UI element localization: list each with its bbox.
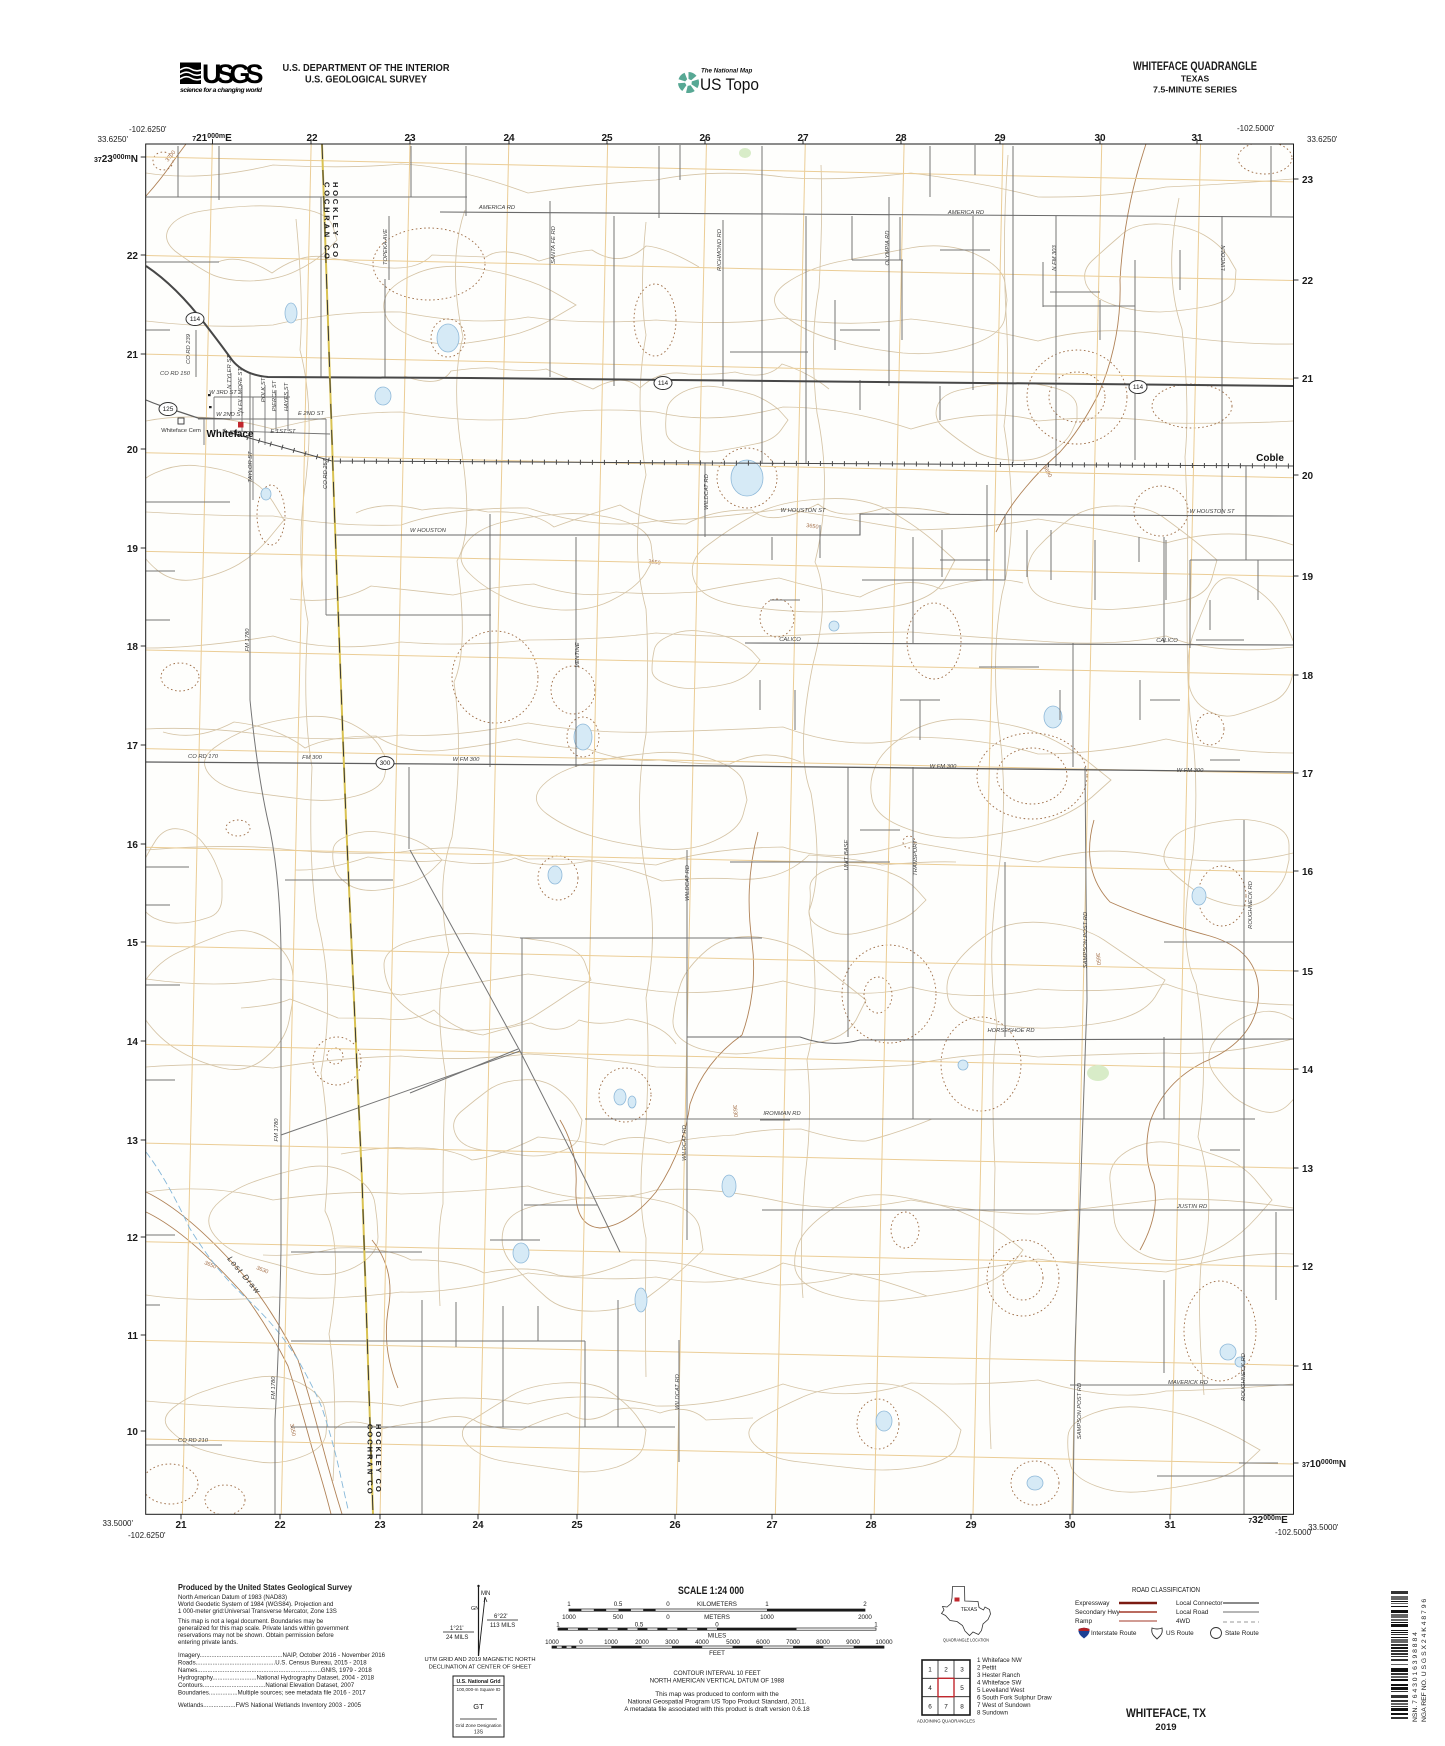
svg-text:U.S. National Grid: U.S. National Grid: [456, 1679, 500, 1685]
svg-text:13S: 13S: [474, 1730, 484, 1736]
svg-text:8000: 8000: [816, 1639, 830, 1646]
svg-text:19: 19: [127, 544, 139, 555]
svg-text:CO RD 170: CO RD 170: [188, 754, 219, 760]
svg-text:19: 19: [1302, 572, 1314, 583]
svg-text:WHITEFACE, TX: WHITEFACE, TX: [1126, 1706, 1206, 1720]
svg-text:4 Whiteface SW: 4 Whiteface SW: [977, 1680, 1022, 1687]
svg-text:13: 13: [127, 1136, 139, 1147]
svg-text:E 1ST ST: E 1ST ST: [270, 429, 296, 435]
svg-text:113 MILS: 113 MILS: [490, 1623, 515, 1629]
svg-text:TEXAS: TEXAS: [1181, 74, 1210, 84]
svg-text:2: 2: [944, 1667, 948, 1674]
svg-text:21: 21: [175, 1520, 187, 1531]
svg-text:Imagery.......................: Imagery.................................…: [178, 1652, 386, 1659]
svg-text:WILDCAT RD: WILDCAT RD: [685, 865, 691, 901]
svg-text:Interstate Route: Interstate Route: [1091, 1630, 1137, 1637]
svg-text:20: 20: [1302, 471, 1314, 482]
svg-text:Expressway: Expressway: [1075, 1600, 1110, 1607]
svg-text:0: 0: [666, 1601, 670, 1608]
svg-text:WILDCAT RD: WILDCAT RD: [704, 474, 710, 510]
svg-text:6 South Fork Sulphur Draw: 6 South Fork Sulphur Draw: [977, 1695, 1052, 1702]
svg-text:25: 25: [601, 133, 613, 144]
svg-text:ADJOINING QUADRANGLES: ADJOINING QUADRANGLES: [917, 1719, 975, 1725]
svg-text:7000: 7000: [786, 1639, 800, 1646]
svg-text:CO RD 239: CO RD 239: [186, 333, 192, 364]
svg-text:SAMPSON POST RD: SAMPSON POST RD: [1077, 1383, 1083, 1439]
svg-text:VENTINE: VENTINE: [575, 642, 581, 667]
svg-text:14: 14: [1302, 1065, 1314, 1076]
svg-text:Local Road: Local Road: [1176, 1609, 1209, 1616]
svg-text:W FM 300: W FM 300: [1177, 768, 1205, 774]
svg-text:METERS: METERS: [704, 1614, 730, 1621]
svg-text:NSN. 7 6 4 3 0 1 6 3 9 8 8 8: NSN. 7 6 4 3 0 1 6 3 9 8 8 8 4: [1412, 1632, 1419, 1722]
svg-text:12: 12: [127, 1233, 139, 1244]
svg-text:science for a changing world: science for a changing world: [180, 87, 263, 94]
svg-text:W 3RD ST: W 3RD ST: [209, 390, 237, 396]
svg-text:JUSTIN RD: JUSTIN RD: [1176, 1204, 1207, 1210]
svg-text:2000: 2000: [858, 1614, 872, 1621]
svg-text:US Route: US Route: [1166, 1630, 1194, 1637]
svg-text:TRANSPORT: TRANSPORT: [913, 840, 919, 876]
svg-text:-102.6250': -102.6250': [128, 1531, 166, 1540]
svg-text:5: 5: [960, 1685, 964, 1692]
svg-text:2: 2: [863, 1601, 867, 1608]
svg-text:27: 27: [766, 1520, 778, 1531]
svg-text:Coble: Coble: [1256, 453, 1284, 464]
svg-text:500: 500: [613, 1614, 624, 1621]
svg-text:22: 22: [306, 133, 318, 144]
svg-text:Hydrography...................: Hydrography..........................Nat…: [178, 1675, 375, 1682]
svg-text:CALICO: CALICO: [1156, 638, 1178, 644]
svg-text:State Route: State Route: [1225, 1630, 1259, 1637]
svg-text:KILOMETERS: KILOMETERS: [697, 1601, 737, 1608]
svg-text:Whiteface: Whiteface: [207, 428, 254, 440]
svg-text:Secondary Hwy: Secondary Hwy: [1075, 1609, 1121, 1616]
svg-text:12: 12: [1302, 1262, 1314, 1273]
svg-text:6000: 6000: [756, 1639, 770, 1646]
svg-text:31: 31: [1191, 133, 1203, 144]
svg-text:National Geospatial Program US: National Geospatial Program US Topo Prod…: [628, 1699, 807, 1706]
svg-text:DECLINATION AT CENTER OF SHEET: DECLINATION AT CENTER OF SHEET: [429, 1665, 532, 1671]
svg-text:SAMPSON POST RD: SAMPSON POST RD: [1083, 912, 1089, 968]
svg-text:NGA REF NO. U S G S X 2 4 K: NGA REF NO. U S G S X 2 4 K 4 8 7 9 6: [1421, 1599, 1428, 1722]
svg-text:U.S. DEPARTMENT OF THE INTERIO: U.S. DEPARTMENT OF THE INTERIOR: [283, 63, 451, 74]
svg-text:CO RD 150: CO RD 150: [160, 371, 191, 377]
svg-text:GN: GN: [471, 1606, 479, 1612]
svg-text:entering private lands.: entering private lands.: [178, 1639, 238, 1646]
svg-text:100,000-m Square ID: 100,000-m Square ID: [457, 1687, 502, 1692]
svg-text:26: 26: [699, 133, 711, 144]
svg-text:TAYLOR ST: TAYLOR ST: [248, 451, 254, 483]
svg-text:20: 20: [127, 445, 139, 456]
svg-text:10: 10: [127, 1427, 139, 1438]
svg-text:3630: 3630: [731, 1105, 738, 1118]
svg-text:3 Hester Ranch: 3 Hester Ranch: [977, 1672, 1021, 1679]
svg-text:NORTH AMERICAN VERTICAL DATUM: NORTH AMERICAN VERTICAL DATUM OF 1988: [650, 1678, 785, 1685]
svg-text:HORSESHOE RD: HORSESHOE RD: [987, 1028, 1034, 1034]
svg-text:3000: 3000: [665, 1639, 679, 1646]
svg-text:25: 25: [571, 1520, 583, 1531]
svg-text:28: 28: [895, 133, 907, 144]
svg-text:UTM GRID AND 2019 MAGNETIC NOR: UTM GRID AND 2019 MAGNETIC NORTH: [424, 1657, 535, 1663]
svg-text:0: 0: [715, 1622, 719, 1629]
svg-text:-102.6250': -102.6250': [129, 125, 167, 134]
svg-text:COCHRAN CO: COCHRAN CO: [322, 182, 331, 262]
svg-text:24: 24: [472, 1520, 484, 1531]
svg-text:22: 22: [274, 1520, 286, 1531]
svg-text:29: 29: [994, 133, 1006, 144]
svg-text:This map was produced to confo: This map was produced to conform with th…: [655, 1691, 779, 1698]
svg-text:9000: 9000: [846, 1639, 860, 1646]
svg-text:-102.5000': -102.5000': [1237, 124, 1275, 133]
svg-text:LINCOLN: LINCOLN: [1221, 245, 1227, 271]
svg-text:24 MILS: 24 MILS: [446, 1635, 468, 1641]
svg-text:E 2ND ST: E 2ND ST: [298, 411, 325, 417]
svg-text:30: 30: [1064, 1520, 1076, 1531]
svg-text:10000: 10000: [875, 1639, 893, 1646]
svg-text:IRONMAN RD: IRONMAN RD: [763, 1111, 800, 1117]
svg-text:16: 16: [1302, 867, 1314, 878]
svg-text:POLK ST: POLK ST: [261, 377, 267, 402]
svg-text:Ramp: Ramp: [1075, 1618, 1092, 1625]
svg-text:WILDCAT RD: WILDCAT RD: [682, 1125, 688, 1161]
svg-text:23: 23: [374, 1520, 386, 1531]
svg-text:ROUGHNECK RD: ROUGHNECK RD: [1248, 881, 1254, 929]
svg-text:generalized for this map scale: generalized for this map scale. Private …: [178, 1625, 349, 1632]
svg-text:W HOUSTON ST: W HOUSTON ST: [1190, 509, 1235, 515]
svg-text:11: 11: [127, 1331, 138, 1342]
svg-text:MAVERICK RD: MAVERICK RD: [1168, 1380, 1208, 1386]
svg-text:1: 1: [765, 1601, 769, 1608]
svg-text:6: 6: [928, 1704, 932, 1711]
svg-text:CALICO: CALICO: [779, 637, 801, 643]
svg-text:7.5-MINUTE SERIES: 7.5-MINUTE SERIES: [1153, 85, 1237, 95]
svg-text:28: 28: [865, 1520, 877, 1531]
svg-text:7 West of Sundown: 7 West of Sundown: [977, 1702, 1031, 1709]
svg-text:300: 300: [380, 760, 391, 767]
svg-text:FM 300: FM 300: [302, 755, 322, 761]
svg-text:FM 1780: FM 1780: [245, 628, 251, 652]
svg-text:MILES: MILES: [708, 1633, 727, 1640]
svg-text:Local Connector: Local Connector: [1176, 1600, 1223, 1607]
svg-text:W HOUSTON: W HOUSTON: [410, 528, 447, 534]
svg-text:Roads.........................: Roads...................................…: [178, 1660, 367, 1667]
svg-text:33.6250': 33.6250': [1307, 135, 1338, 144]
svg-text:16: 16: [127, 840, 139, 851]
svg-text:N FILLMORE ST: N FILLMORE ST: [238, 368, 244, 412]
svg-text:30: 30: [1094, 133, 1106, 144]
svg-text:W HOUSTON ST: W HOUSTON ST: [781, 508, 826, 514]
svg-text:17: 17: [1302, 769, 1314, 780]
svg-text:8: 8: [960, 1704, 964, 1711]
svg-text:4000: 4000: [695, 1639, 709, 1646]
svg-text:33.5000': 33.5000': [103, 1519, 134, 1528]
svg-text:17: 17: [127, 741, 139, 752]
svg-text:2 Pettit: 2 Pettit: [977, 1665, 997, 1672]
svg-text:5 Levelland West: 5 Levelland West: [977, 1687, 1025, 1694]
svg-text:Wetlands...................FWS: Wetlands...................FWS National …: [178, 1702, 362, 1709]
svg-text:15: 15: [127, 938, 139, 949]
svg-text:SANTA FE RD: SANTA FE RD: [551, 226, 557, 264]
svg-text:1000: 1000: [760, 1614, 774, 1621]
svg-text:Grid Zone Designation: Grid Zone Designation: [456, 1723, 502, 1728]
svg-text:114: 114: [1133, 384, 1144, 391]
svg-text:18: 18: [1302, 671, 1314, 682]
svg-text:WILDCAT RD: WILDCAT RD: [675, 1374, 681, 1410]
svg-text:CO RD 257: CO RD 257: [323, 458, 329, 489]
svg-text:ROAD CLASSIFICATION: ROAD CLASSIFICATION: [1132, 1587, 1200, 1594]
svg-text:3650: 3650: [1094, 953, 1101, 966]
svg-text:0.5: 0.5: [635, 1622, 644, 1629]
svg-text:0.5: 0.5: [614, 1601, 623, 1608]
svg-text:1: 1: [874, 1622, 878, 1629]
svg-text:ROUGHNECK RD: ROUGHNECK RD: [1241, 1353, 1247, 1401]
svg-text:1000: 1000: [562, 1614, 576, 1621]
svg-text:29: 29: [965, 1520, 977, 1531]
svg-text:RICHMOND RD: RICHMOND RD: [717, 229, 723, 271]
svg-text:N FM 303: N FM 303: [1052, 245, 1058, 271]
svg-text:W FM 300: W FM 300: [453, 757, 481, 763]
svg-text:North American Datum of 1983 (: North American Datum of 1983 (NAD83): [178, 1594, 287, 1601]
svg-text:22: 22: [127, 251, 139, 262]
svg-text:QUADRANGLE LOCATION: QUADRANGLE LOCATION: [943, 1638, 989, 1643]
svg-text:31: 31: [1164, 1520, 1176, 1531]
svg-text:1000: 1000: [545, 1639, 559, 1646]
svg-text:15: 15: [1302, 967, 1314, 978]
svg-text:Names.........................: Names...................................…: [178, 1667, 372, 1674]
svg-text:WHITEFACE QUADRANGLE: WHITEFACE QUADRANGLE: [1133, 61, 1257, 73]
svg-text:18: 18: [127, 642, 139, 653]
svg-text:U.S. GEOLOGICAL SURVEY: U.S. GEOLOGICAL SURVEY: [305, 75, 427, 86]
svg-text:Produced by the United States: Produced by the United States Geological…: [178, 1583, 353, 1592]
svg-text:US Topo: US Topo: [700, 76, 759, 94]
svg-text:33.5000': 33.5000': [1308, 1523, 1339, 1532]
svg-text:4WD: 4WD: [1176, 1618, 1191, 1625]
svg-text:23: 23: [1302, 175, 1314, 186]
svg-text:A metadata file associated wit: A metadata file associated with this pro…: [624, 1706, 810, 1713]
svg-text:FEET: FEET: [709, 1650, 725, 1657]
svg-text:1000: 1000: [604, 1639, 618, 1646]
svg-text:2000: 2000: [635, 1639, 649, 1646]
svg-text:23: 23: [404, 133, 416, 144]
svg-text:5000: 5000: [726, 1639, 740, 1646]
svg-text:1 000-meter grid:Universal Tra: 1 000-meter grid:Universal Transverse Me…: [178, 1608, 337, 1615]
svg-text:TEXAS: TEXAS: [961, 1607, 978, 1613]
svg-text:3: 3: [960, 1667, 964, 1674]
svg-text:11: 11: [1302, 1362, 1313, 1373]
svg-text:2019: 2019: [1155, 1722, 1176, 1733]
svg-text:AMERICA RD: AMERICA RD: [478, 205, 515, 211]
svg-text:The National Map: The National Map: [701, 68, 752, 75]
svg-text:Boundaries.................Mul: Boundaries.................Multiple sour…: [178, 1690, 366, 1697]
svg-text:USGS: USGS: [202, 59, 262, 89]
svg-text:1°21': 1°21': [450, 1626, 464, 1632]
svg-text:125: 125: [163, 406, 174, 413]
svg-text:N TYLER ST: N TYLER ST: [227, 355, 233, 389]
svg-text:CO RD 210: CO RD 210: [178, 1438, 209, 1444]
svg-text:MN: MN: [481, 1591, 490, 1597]
svg-text:This map is not a legal docume: This map is not a legal document. Bounda…: [178, 1618, 324, 1625]
svg-text:W FM 300: W FM 300: [930, 764, 958, 770]
svg-text:7: 7: [944, 1704, 948, 1711]
svg-text:27: 27: [797, 133, 809, 144]
svg-text:FM 1780: FM 1780: [271, 1376, 277, 1400]
svg-text:Whiteface Cem: Whiteface Cem: [161, 428, 201, 434]
svg-text:reservations may not be shown.: reservations may not be shown. Obtain pe…: [178, 1632, 334, 1639]
svg-text:26: 26: [669, 1520, 681, 1531]
svg-text:0: 0: [579, 1639, 583, 1646]
svg-text:8 Sundown: 8 Sundown: [977, 1710, 1009, 1717]
svg-text:1: 1: [928, 1667, 932, 1674]
svg-text:FM 1780: FM 1780: [274, 1118, 280, 1142]
svg-text:1 Whiteface NW: 1 Whiteface NW: [977, 1657, 1022, 1664]
svg-text:6°22': 6°22': [494, 1614, 508, 1620]
svg-text:114: 114: [190, 316, 201, 323]
svg-text:24: 24: [503, 133, 515, 144]
svg-text:Contours......................: Contours................................…: [178, 1682, 355, 1689]
svg-text:SCALE 1:24 000: SCALE 1:24 000: [678, 1585, 744, 1597]
svg-text:HAYES ST: HAYES ST: [284, 382, 290, 411]
svg-text:GT: GT: [473, 1702, 484, 1711]
svg-text:TOPEKA AVE: TOPEKA AVE: [383, 229, 389, 265]
svg-text:AMERICA RD: AMERICA RD: [947, 210, 984, 216]
svg-text:114: 114: [658, 380, 669, 387]
svg-text:CONTOUR INTERVAL 10 FEET: CONTOUR INTERVAL 10 FEET: [673, 1670, 760, 1677]
svg-text:33.6250': 33.6250': [98, 135, 129, 144]
svg-text:UNIT BASE: UNIT BASE: [844, 840, 850, 871]
svg-text:1: 1: [556, 1622, 560, 1629]
svg-text:4: 4: [928, 1685, 932, 1692]
svg-text:14: 14: [127, 1037, 139, 1048]
svg-text:13: 13: [1302, 1164, 1314, 1175]
svg-text:1: 1: [567, 1601, 571, 1608]
svg-text:COCHRAN CO: COCHRAN CO: [365, 1424, 374, 1496]
svg-text:World Geodetic System of 1984: World Geodetic System of 1984 (WGS84). P…: [178, 1601, 333, 1608]
svg-text:0: 0: [666, 1614, 670, 1621]
svg-text:OLYMPIA RD: OLYMPIA RD: [885, 230, 891, 265]
svg-text:W 2ND ST: W 2ND ST: [216, 412, 244, 418]
svg-text:21: 21: [127, 350, 139, 361]
svg-text:21: 21: [1302, 374, 1314, 385]
svg-text:22: 22: [1302, 276, 1314, 287]
svg-text:PIERCE ST: PIERCE ST: [272, 380, 278, 411]
